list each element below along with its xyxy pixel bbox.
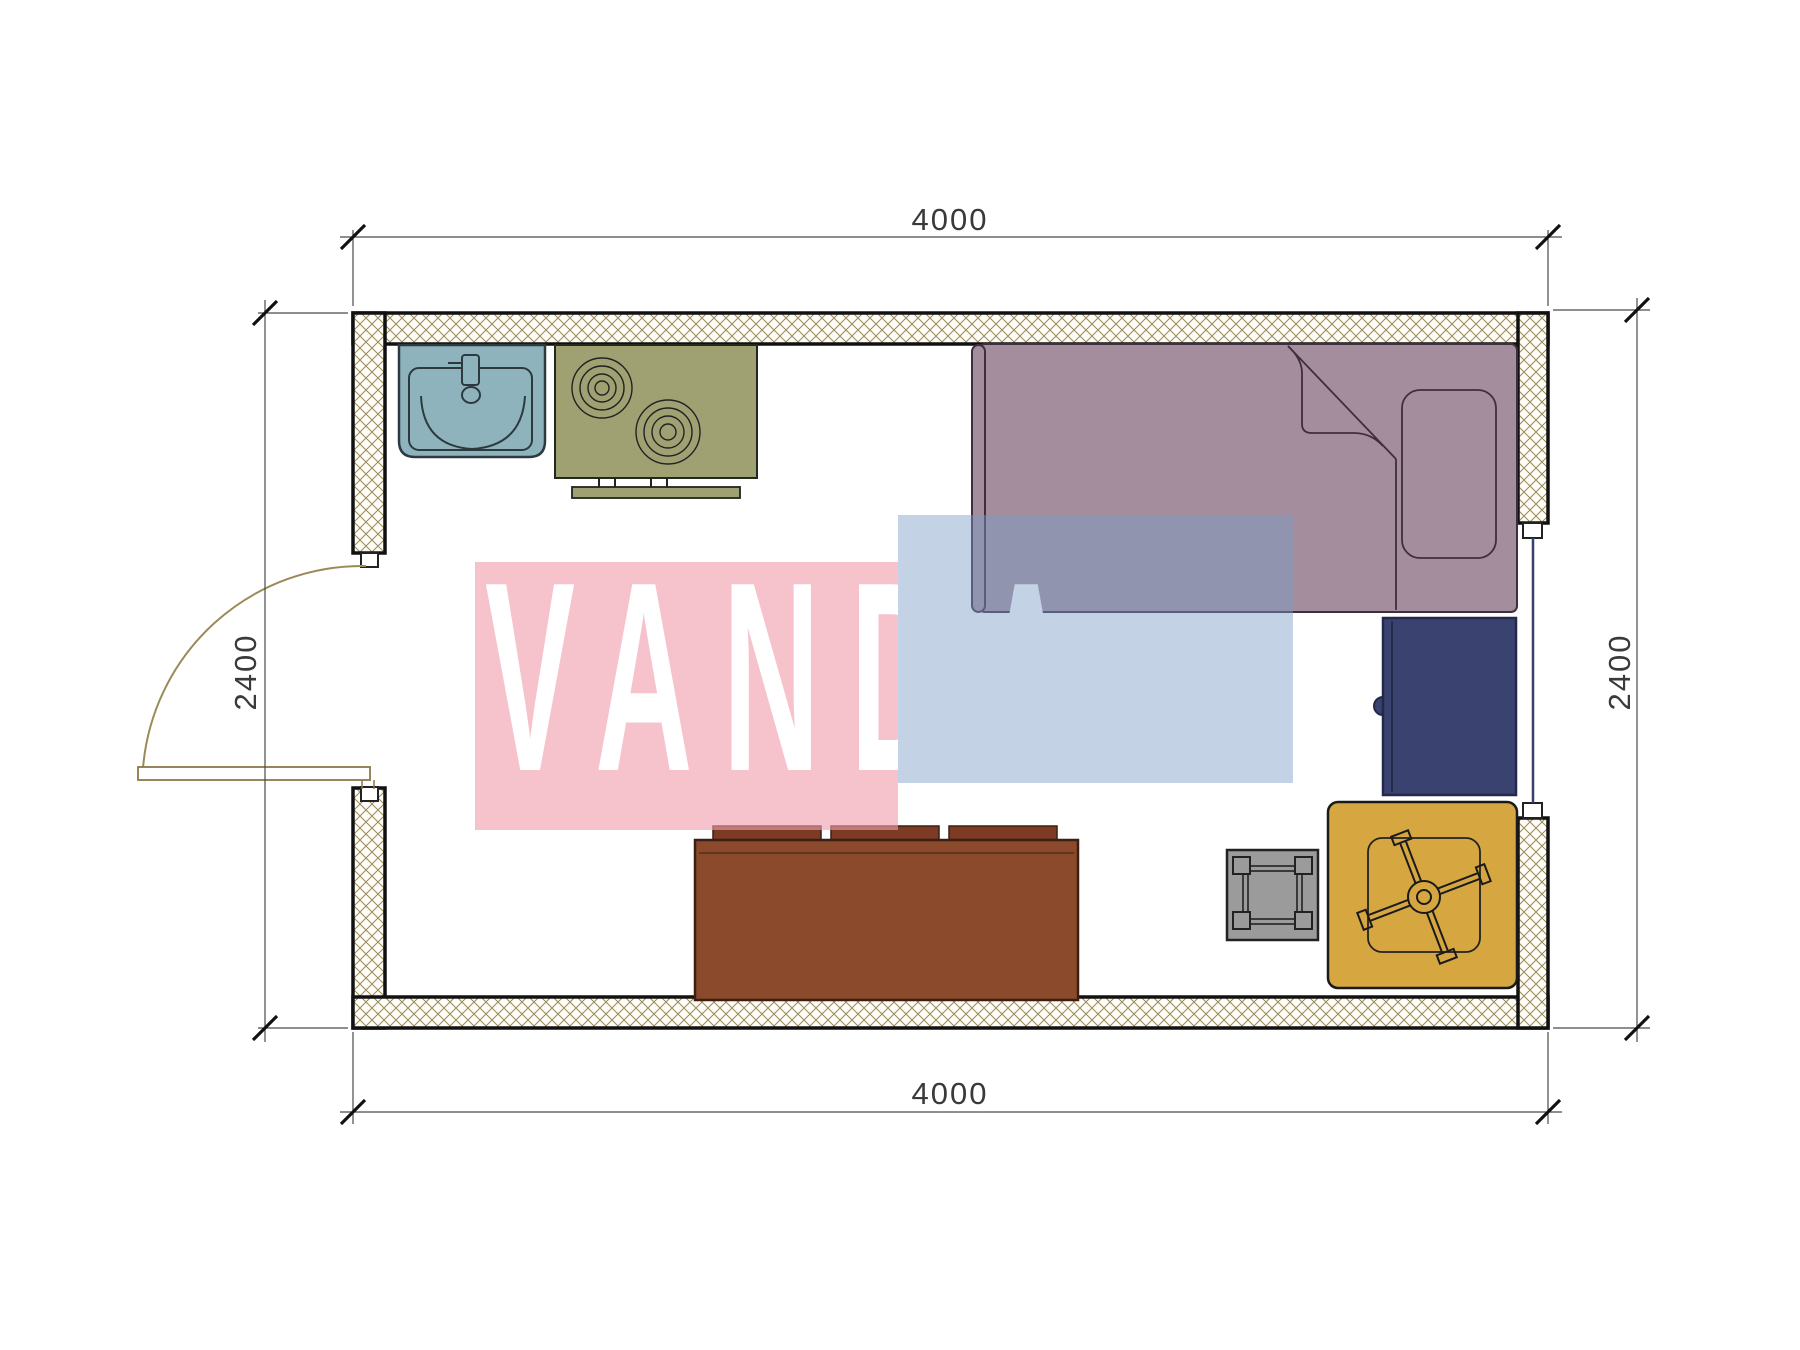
wall-left-lower <box>353 788 385 1028</box>
cabinet <box>1374 618 1516 795</box>
watermark-blue-rect <box>898 515 1293 783</box>
window <box>1523 523 1542 818</box>
chair-hub <box>1408 881 1440 913</box>
wall-right-upper <box>1518 313 1548 523</box>
stool <box>1227 850 1318 940</box>
window-jamb-bottom <box>1523 803 1542 818</box>
wall-right-lower <box>1518 818 1548 1028</box>
dim-label-left: 2400 <box>228 634 263 711</box>
swivel-chair <box>1328 802 1517 988</box>
cabinet-body <box>1383 618 1516 795</box>
wall-top <box>353 313 1548 344</box>
sink <box>399 345 545 457</box>
bed-pillow <box>1402 390 1496 558</box>
door-leaf <box>138 767 370 780</box>
door-jamb-bottom <box>361 787 378 801</box>
dim-label-bottom: 4000 <box>912 1076 989 1111</box>
dim-label-top: 4000 <box>912 202 989 237</box>
wall-bottom <box>353 997 1548 1028</box>
floor-plan-page: 4000 4000 2400 2400 <box>0 0 1800 1350</box>
wall-left-upper <box>353 313 385 553</box>
faucet-icon <box>462 355 479 385</box>
door-jamb-top <box>361 553 378 567</box>
dim-label-right: 2400 <box>1602 634 1637 711</box>
window-jamb-top <box>1523 523 1542 538</box>
